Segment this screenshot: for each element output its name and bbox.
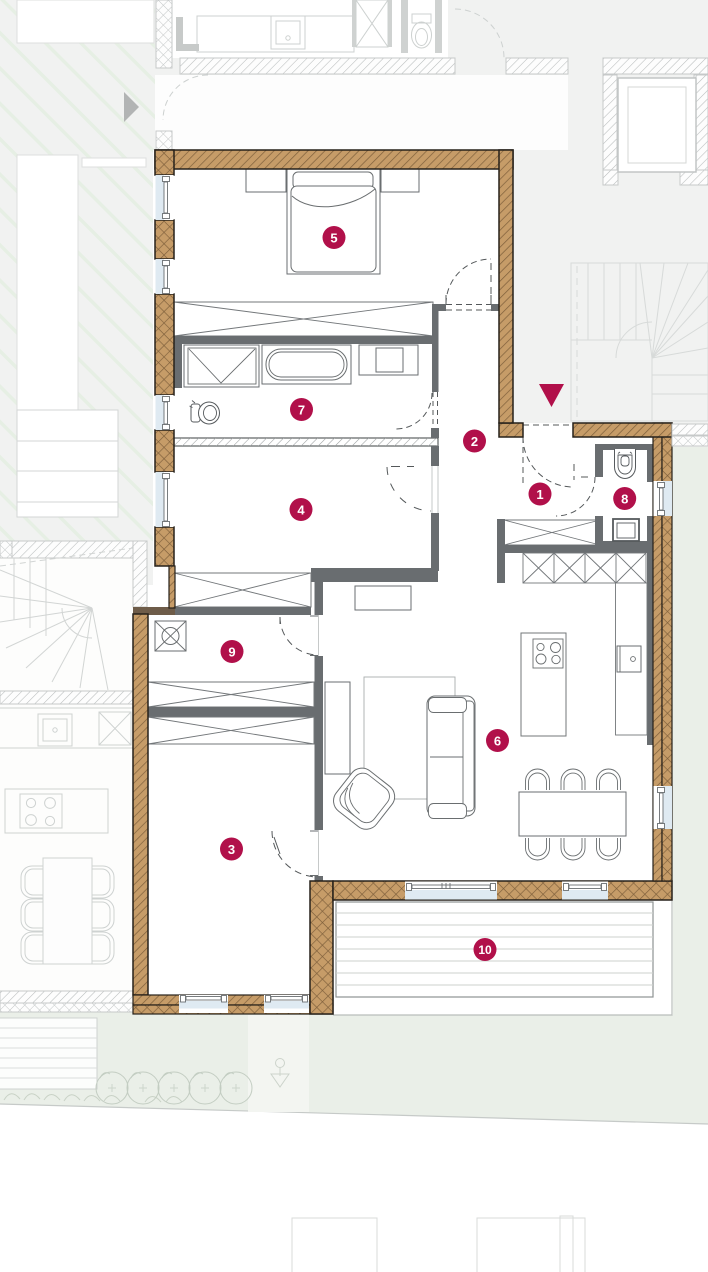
svg-text:3: 3 [228,842,235,857]
svg-text:1: 1 [536,487,543,502]
svg-text:9: 9 [228,645,235,660]
svg-text:6: 6 [494,734,501,749]
svg-text:2: 2 [471,434,478,449]
svg-text:7: 7 [298,403,305,418]
svg-text:8: 8 [621,492,628,507]
svg-text:5: 5 [330,231,337,246]
svg-text:10: 10 [478,943,492,957]
svg-text:4: 4 [297,503,305,518]
